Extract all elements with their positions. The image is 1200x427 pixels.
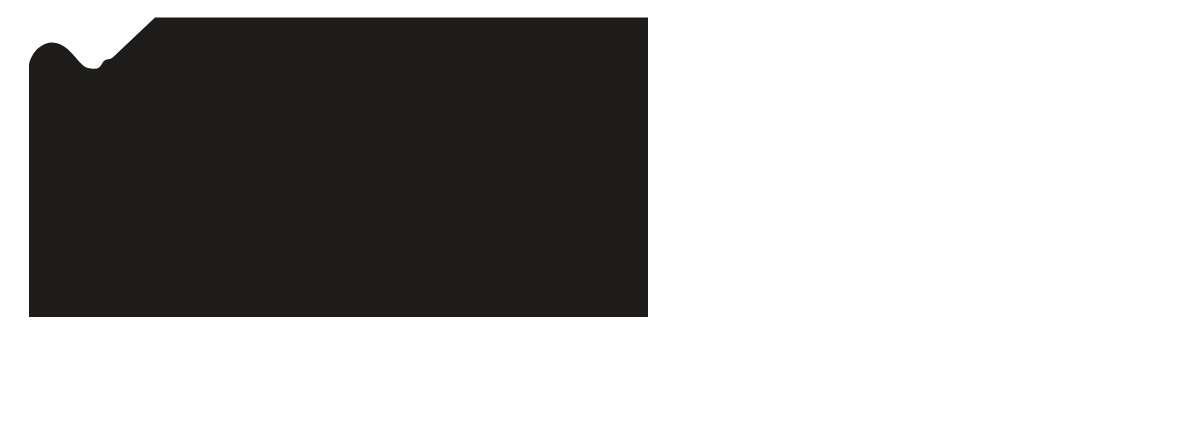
area-fill-shape — [29, 18, 648, 318]
page-background — [0, 0, 1200, 427]
area-chart — [0, 0, 1200, 427]
